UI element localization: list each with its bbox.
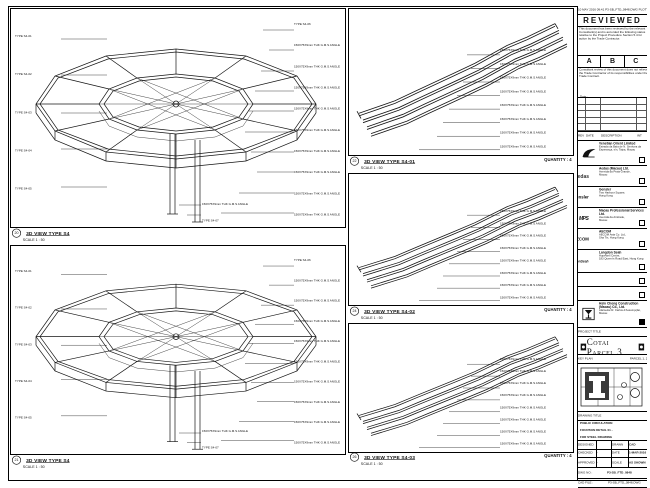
view-title: 3D VIEW TYPE S4 (26, 458, 70, 463)
caption-view-s4-02: 24 3D VIEW TYPE S4-02 QUANTITY : 4 SCALE… (350, 306, 574, 323)
revision-header-cell: REV (578, 134, 582, 137)
caption-view-s4-01: 22 3D VIEW TYPE S4-01 QUANTITY : 4 SCALE… (350, 156, 574, 173)
status-checkbox (639, 157, 645, 163)
hsin-chong-logo-icon (578, 307, 599, 321)
aecom-logo-icon: AECOM (578, 234, 599, 244)
reviewed-stamp: REVIEWED This document has been reviewed… (578, 15, 647, 98)
consultant-address: AECOM Asia Co. Ltd., Sha Tin, Hong Kong (599, 234, 647, 240)
drawing-info-table: DESIGNED DRAWN CAD CHECKED - DATE 1-MAR-… (578, 441, 647, 468)
reviewed-title: REVIEWED (578, 15, 647, 27)
caption-view-s4-bottom: 21 3D VIEW TYPE S4 SCALE 1 : 50 (12, 455, 346, 472)
langdon-seah-logo-icon: LangdonSeah (578, 258, 599, 265)
title-block: 10 MAY 2016 09:41 P3-SB_FTD_0848.DWG PLO… (577, 6, 647, 480)
plot-stamp: 10 MAY 2016 09:41 P3-SB_FTD_0848.DWG PLO… (578, 6, 647, 15)
radial-canopy-wireframe (11, 246, 345, 454)
reviewed-paragraph-1: This document has been reviewed by the r… (578, 27, 647, 41)
view-title: 3D VIEW TYPE S4-01 (364, 159, 415, 164)
consultant-address: Two Harbour Square, Hong Kong (599, 192, 647, 198)
project-title-label: PROJECT TITLE (578, 331, 601, 334)
view-scale: SCALE 1 : 50 (23, 466, 346, 470)
consultant-row-empty-1 (578, 273, 647, 287)
view-panel-3d-type-s4-top: TYPE S4-01TYPE S4-02TYPE S4-03TYPE S4-04… (10, 8, 346, 228)
dwg-number-strip: DWG NO : P3-SB_FTD_0848 REV : A (578, 468, 647, 479)
review-status-option: A (578, 56, 601, 67)
view-scale: SCALE 1 : 50 (23, 239, 346, 243)
view-panel-s4-01: 150X75X9mm THK G.M.S ANGLE150X75X9mm THK… (348, 8, 574, 156)
revision-table: REVDATEDESCRIPTIONINT (578, 98, 647, 141)
view-panel-3d-type-s4-bottom: TYPE S4-01TYPE S4-02TYPE S4-03TYPE S4-04… (10, 245, 346, 455)
revision-header-cell: DESCRIPTION (601, 134, 619, 137)
dwg-number: P3-SB_FTD_0848 (607, 472, 632, 475)
detail-bubble: 26 (350, 453, 359, 462)
consultant-row-empty-2 (578, 287, 647, 301)
revision-header-cell: INT (637, 134, 642, 137)
consultant-row-mps: MPS Macau Professional Services Ltd. Ave… (578, 208, 647, 229)
pipe-bundle-wireframe (349, 9, 573, 155)
review-status-option: B (601, 56, 624, 67)
reviewed-date-line: Date : (578, 90, 647, 99)
consultant-row-aecom: AECOM AECOM AECOM Asia Co. Ltd., Sha Tin… (578, 229, 647, 250)
view-title: 3D VIEW TYPE S4-02 (364, 309, 415, 314)
radial-canopy-wireframe (11, 9, 345, 227)
view-scale: SCALE 1 : 50 (361, 463, 574, 467)
status-checkbox (639, 278, 645, 284)
consultant-address: Hopewell Centre, 183 Queen's Road East, … (599, 255, 647, 261)
project-name: Cotai Parcel 3 (587, 337, 638, 356)
contractor-name: Hsin Chong Construction (Macau) Co., Ltd… (599, 302, 647, 309)
consultant-row-aedas: Aedas Aedas (Macau) Ltd. Avenida da Prai… (578, 166, 647, 187)
view-panel-s4-03: 150X75X9mm THK G.M.S ANGLE150X75X9mm THK… (348, 323, 574, 453)
cad-file-strip: CAD FILE : P3-SB_FTD_0848.DWG (578, 479, 647, 488)
drawing-title-label: DRAWING TITLE (578, 415, 601, 418)
consultant-row-gensler: Gensler Gensler Two Harbour Square, Hong… (578, 187, 647, 208)
quantity-note: QUANTITY : 4 (544, 308, 571, 312)
project-title-block: PROJECT TITLE Cotai Parcel 3 (578, 328, 647, 355)
key-plan-parcel-label: PARCEL 1, 2 & 3 (630, 358, 647, 361)
drawing-title-block: DRAWING TITLE PUBLIC CIRCULATION FOUNTAI… (578, 412, 647, 441)
pipe-bundle-wireframe (349, 174, 573, 305)
detail-bubble: 20 (12, 229, 21, 238)
status-checkbox (639, 292, 645, 298)
review-status-option: C (625, 56, 647, 67)
status-checkbox (639, 319, 645, 325)
detail-bubble: 22 (350, 157, 359, 166)
caption-view-s4-top: 20 3D VIEW TYPE S4 SCALE 1 : 50 (12, 228, 346, 245)
revision-header-cell: DATE (586, 134, 594, 137)
status-checkbox (639, 241, 645, 247)
quantity-note: QUANTITY : 4 (544, 454, 571, 458)
key-plan-map (578, 364, 645, 412)
key-plan-label: KEY PLAN (578, 358, 593, 361)
consultant-address: Estrada da Baía de N. Senhora da Esperan… (599, 146, 647, 152)
revision-table-header: REVDATEDESCRIPTIONINT (578, 131, 647, 140)
drawing-title-line: FOUNTAIN DETAIL 01 - (580, 429, 613, 433)
status-checkbox (639, 178, 645, 184)
aedas-logo-icon: Aedas (578, 171, 599, 182)
pipe-bundle-wireframe (349, 324, 573, 452)
drawing-sheet: TYPE S4-01TYPE S4-02TYPE S4-03TYPE S4-04… (0, 0, 650, 488)
key-plan-block: KEY PLAN PARCEL 1, 2 & 3 (578, 355, 647, 412)
view-scale: SCALE 1 : 50 (361, 167, 574, 171)
gensler-logo-icon: Gensler (578, 192, 599, 202)
quantity-note: QUANTITY : 4 (544, 158, 571, 162)
consultant-row-langdon-seah: LangdonSeah Langdon Seah Hopewell Centre… (578, 250, 647, 273)
drawing-title-line: FOR STEEL DRAWING (580, 436, 613, 440)
contractor-address: Alameda Dr. Carlos d'Assumpção, Macau (599, 309, 647, 315)
view-title: 3D VIEW TYPE S4 (26, 231, 70, 236)
dwg-number-label: DWG NO : (578, 472, 592, 475)
banner-emblem-icon (580, 341, 587, 353)
status-checkbox (639, 220, 645, 226)
consultant-row-venetian: Venetian Orient Limited Estrada da Baía … (578, 141, 647, 166)
caption-view-s4-03: 26 3D VIEW TYPE S4-03 QUANTITY : 4 SCALE… (350, 452, 574, 469)
consultant-name: Macau Professional Services Ltd. (599, 209, 647, 216)
review-status-row: ABC (578, 55, 647, 68)
detail-bubble: 24 (350, 307, 359, 316)
status-checkbox (639, 199, 645, 205)
view-title: 3D VIEW TYPE S4-03 (364, 455, 415, 460)
banner-emblem-icon (638, 341, 645, 353)
view-scale: SCALE 1 : 50 (361, 317, 574, 321)
venetian-logo-icon (578, 147, 599, 159)
view-panel-s4-02: 150X75X9mm THK G.M.S ANGLE150X75X9mm THK… (348, 173, 574, 306)
mps-logo-icon: MPS (578, 213, 599, 224)
reviewed-paragraph-2: Consultant review of this document does … (578, 68, 647, 79)
contractor-row-hsin-chong: Hsin Chong Construction (Macau) Co., Ltd… (578, 301, 647, 328)
detail-bubble: 21 (12, 456, 21, 465)
status-checkbox (639, 264, 645, 270)
consultant-address: Avenida da Praia Grande, Macau (599, 171, 647, 177)
drawing-title-line: PUBLIC CIRCULATION (580, 422, 613, 426)
